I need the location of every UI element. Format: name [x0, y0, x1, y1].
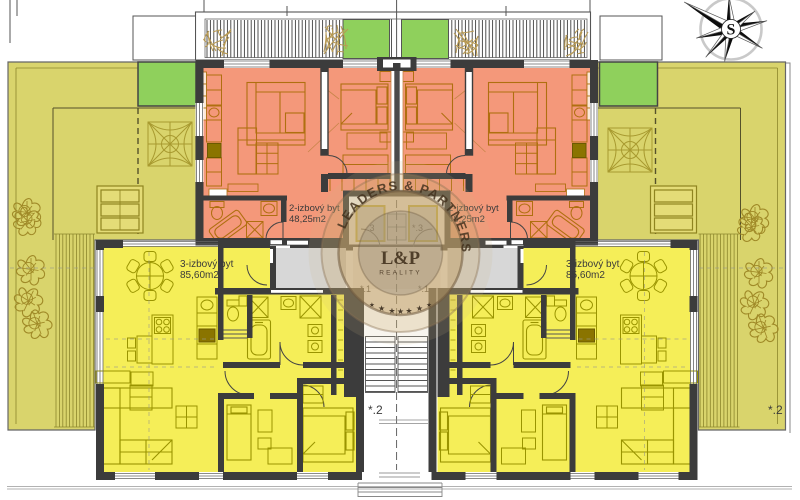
svg-text:S: S — [727, 22, 736, 39]
svg-text:*.2: *.2 — [368, 403, 383, 417]
svg-text:L&P: L&P — [381, 249, 420, 269]
svg-text:3-izbový byt: 3-izbový byt — [180, 259, 234, 270]
svg-text:85,60m2: 85,60m2 — [180, 270, 219, 281]
svg-text:★: ★ — [378, 304, 385, 313]
svg-text:3-izbový byt: 3-izbový byt — [566, 259, 620, 270]
svg-text:★: ★ — [369, 301, 375, 309]
svg-text:REALITY: REALITY — [379, 270, 422, 277]
svg-text:★: ★ — [405, 306, 412, 315]
svg-text:★: ★ — [416, 304, 423, 313]
svg-text:★: ★ — [426, 301, 432, 309]
svg-text:★: ★ — [388, 306, 395, 315]
svg-text:*.2: *.2 — [768, 403, 783, 417]
svg-text:★: ★ — [397, 307, 404, 316]
svg-text:85,60m2: 85,60m2 — [566, 270, 605, 281]
